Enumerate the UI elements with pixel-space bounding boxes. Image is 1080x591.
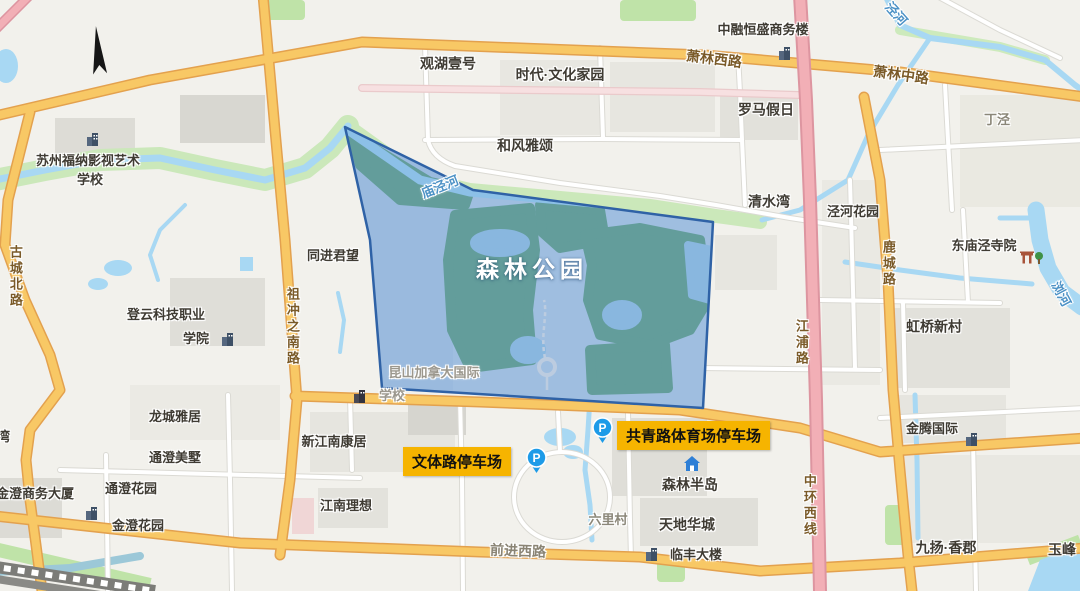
road-label-zuchongzhi-south: 祖冲之南路: [285, 287, 299, 367]
svg-text:P: P: [532, 451, 540, 465]
jinteng-building-icon: [965, 432, 979, 447]
label-dengyun-line1: 登云科技职业: [127, 308, 205, 322]
dengyun-college-building-icon: [221, 332, 235, 347]
house-icon: [683, 455, 701, 472]
linfeng-building-icon: [645, 547, 659, 562]
parking-label-gongqing[interactable]: 共青路体育场停车场: [617, 421, 770, 450]
road-label-jiangpu: 江浦路: [794, 319, 808, 367]
funa-school-building-icon: [86, 132, 100, 147]
label-hefeng-yasong: 和风雅颂: [497, 139, 553, 154]
temple-icon: [1020, 251, 1044, 265]
parking-label-wenti[interactable]: 文体路停车场: [403, 447, 511, 476]
road-label-gucheng-north: 古城北路: [8, 245, 22, 309]
label-xinjiangnan: 新江南康居: [301, 435, 366, 449]
label-yufeng: 玉峰: [1048, 543, 1076, 558]
parking-pin-gongqing[interactable]: P: [591, 417, 614, 444]
label-suzhou-funa-line2: 学校: [77, 173, 103, 187]
label-senlin-bandao: 森林半岛: [662, 478, 718, 493]
compass-north-arrow: [85, 26, 111, 82]
label-jiuyang: 九扬·香郡: [916, 541, 977, 556]
label-jinteng: 金腾国际: [906, 422, 958, 436]
label-linfeng: 临丰大楼: [670, 548, 722, 562]
map-canvas[interactable]: [0, 0, 1080, 591]
parking-pin-wenti[interactable]: P: [525, 447, 548, 474]
label-tongcheng-huayuan: 通澄花园: [105, 482, 157, 496]
road-label-qianjin-west: 前进西路: [490, 543, 546, 560]
label-dingjing: 丁泾: [984, 113, 1010, 127]
jincheng-tower-building-icon: [85, 506, 99, 521]
road-label-zhonghuan-west: 中环西线: [802, 474, 816, 538]
label-luoma-jiari: 罗马假日: [738, 103, 794, 118]
label-tongjin: 同进君望: [307, 249, 359, 263]
label-tiandi-huacheng: 天地华城: [659, 518, 715, 533]
label-wan-partial: 湾: [0, 430, 10, 444]
label-tongcheng-meishu: 通澄美墅: [149, 451, 201, 465]
label-kunshan-canada-line1: 昆山加拿大国际: [388, 366, 479, 380]
label-zhongrong: 中融恒盛商务楼: [717, 23, 808, 37]
label-dengyun-line2: 学院: [183, 332, 209, 346]
zhongrong-office-building-icon: [778, 46, 792, 61]
map-viewport[interactable]: P P 文体路停车场 共青路体育场停车场 森林公园 苏州福纳影视艺术 学校 观湖…: [0, 0, 1080, 591]
label-hongqiao: 虹桥新村: [906, 320, 962, 335]
kunshan-school-building-icon: [353, 389, 367, 404]
label-longcheng: 龙城雅居: [149, 410, 201, 424]
label-jinghe-garden: 泾河花园: [827, 205, 879, 219]
label-dongmiao-temple: 东庙泾寺院: [951, 239, 1016, 253]
label-liulicun: 六里村: [588, 513, 627, 527]
svg-text:P: P: [598, 421, 606, 435]
label-guanhu-yihao: 观湖壹号: [420, 57, 476, 72]
label-jiangnan-lixiang: 江南理想: [320, 499, 372, 513]
road-label-lucheng: 鹿城路: [881, 240, 895, 288]
label-jincheng-garden: 金澄花园: [112, 519, 164, 533]
forest-park-name: 森林公园: [476, 257, 588, 281]
label-shidai-wenhua: 时代·文化家园: [516, 68, 605, 83]
label-qingshuiwan: 清水湾: [748, 195, 790, 210]
label-suzhou-funa-line1: 苏州福纳影视艺术: [36, 154, 140, 168]
label-jincheng-tower: 金澄商务大厦: [0, 487, 74, 501]
label-kunshan-canada-line2: 学校: [379, 389, 405, 403]
